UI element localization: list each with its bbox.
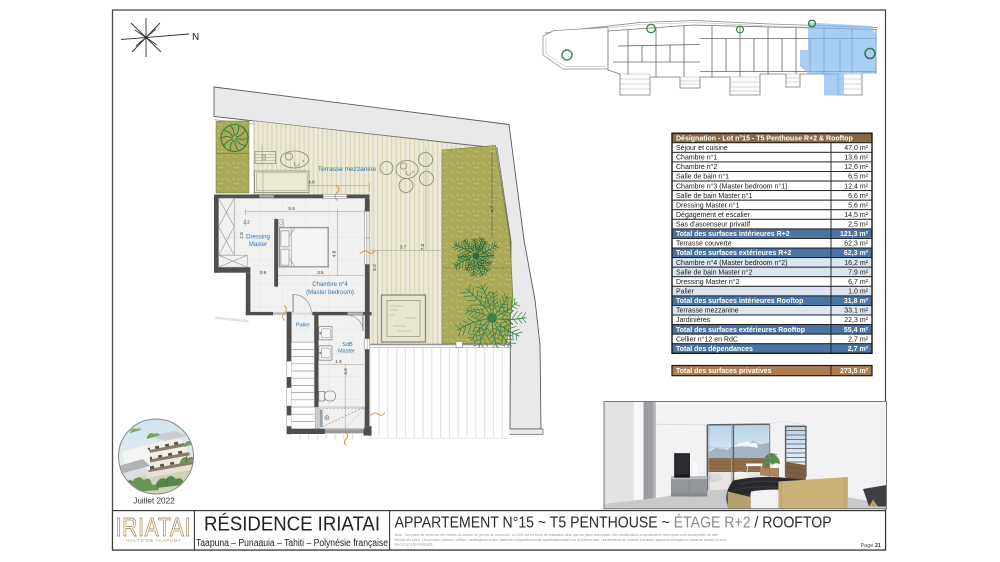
- svg-text:22,3 m²: 22,3 m²: [844, 317, 868, 324]
- svg-text:Dressing Master n°2: Dressing Master n°2: [676, 278, 740, 286]
- svg-text:16,2 m²: 16,2 m²: [844, 260, 868, 267]
- svg-text:12,6 m²: 12,6 m²: [844, 164, 868, 171]
- svg-text:62,3 m²: 62,3 m²: [844, 250, 869, 257]
- svg-text:Dressing: Dressing: [246, 235, 270, 241]
- svg-text:Salle de bain Master n°2: Salle de bain Master n°2: [676, 268, 752, 276]
- svg-text:3.5: 3.5: [317, 270, 324, 275]
- svg-text:SdB: SdB: [342, 342, 353, 348]
- svg-text:6,7 m²: 6,7 m²: [848, 279, 869, 286]
- svg-text:2,7 m²: 2,7 m²: [848, 346, 869, 353]
- svg-text:Nota : Ces plans de vente ont: Nota : Ces plans de vente ont été extrai…: [395, 533, 719, 537]
- svg-text:HAUTS DE TAAPUNA: HAUTS DE TAAPUNA: [126, 538, 182, 543]
- svg-text:Cellier n°12 en RdC: Cellier n°12 en RdC: [676, 335, 738, 343]
- svg-text:Total des surfaces intérieures: Total des surfaces intérieures R+2: [676, 231, 790, 238]
- svg-text:3.7: 3.7: [400, 245, 407, 250]
- svg-text:Taapuna – Punaauia – Tahiti –: Taapuna – Punaauia – Tahiti – Polynésie …: [196, 538, 388, 549]
- svg-text:Terrasse couverte: Terrasse couverte: [676, 241, 732, 248]
- svg-text:Dressing Master n°1: Dressing Master n°1: [676, 201, 740, 209]
- svg-text:31,8 m²: 31,8 m²: [844, 298, 869, 305]
- svg-text:1,0 m²: 1,0 m²: [848, 289, 869, 296]
- svg-text:2.2: 2.2: [262, 154, 267, 161]
- svg-text:Sas d'ascenseur privatif: Sas d'ascenseur privatif: [676, 222, 750, 229]
- svg-text:6.0: 6.0: [372, 264, 377, 271]
- svg-text:12,4 m²: 12,4 m²: [844, 183, 868, 190]
- svg-text:Total des surfaces intérieures: Total des surfaces intérieures Rooftop: [676, 298, 803, 305]
- svg-text:4.7: 4.7: [490, 205, 495, 212]
- svg-text:4.6: 4.6: [308, 180, 315, 185]
- svg-text:13,6 m²: 13,6 m²: [844, 155, 868, 162]
- svg-text:Master: Master: [338, 348, 355, 354]
- svg-text:Chambre n°4 (Master bedroom n°: Chambre n°4 (Master bedroom n°2): [676, 259, 787, 267]
- svg-text:6,6 m²: 6,6 m²: [848, 193, 869, 200]
- svg-text:4.0: 4.0: [343, 368, 348, 375]
- svg-text:Chambre n°1: Chambre n°1: [676, 154, 717, 162]
- svg-text:Total des surfaces extérieures: Total des surfaces extérieures Rooftop: [676, 327, 805, 334]
- svg-text:Page 21: Page 21: [861, 543, 882, 549]
- svg-text:6,5 m²: 6,5 m²: [848, 174, 869, 181]
- svg-text:7,9 m²: 7,9 m²: [848, 269, 869, 276]
- svg-text:Chambre n°3 (Master bedroom n°: Chambre n°3 (Master bedroom n°1): [676, 182, 787, 190]
- svg-text:2.8: 2.8: [239, 232, 244, 239]
- svg-text:Jardinières: Jardinières: [676, 317, 711, 324]
- svg-text:Terrasse mezzanine: Terrasse mezzanine: [318, 166, 377, 173]
- svg-text:5,6 m²: 5,6 m²: [848, 202, 869, 209]
- svg-text:Master: Master: [249, 242, 267, 248]
- svg-text:47,0 m²: 47,0 m²: [844, 145, 868, 152]
- svg-text:Palier: Palier: [676, 289, 695, 296]
- svg-text:RÉSIDENCE IRIATAI: RÉSIDENCE IRIATAI: [204, 513, 380, 536]
- svg-text:4.8: 4.8: [331, 250, 336, 257]
- svg-text:14,5 m²: 14,5 m²: [844, 212, 868, 219]
- svg-text:évoluer les plans. Les poutres: évoluer les plans. Les poutres, poteaux,…: [395, 538, 727, 542]
- svg-text:273,5 m²: 273,5 m²: [840, 368, 869, 375]
- svg-text:Palier: Palier: [296, 322, 310, 328]
- svg-text:Séjour et cuisine: Séjour et cuisine: [676, 145, 728, 152]
- svg-text:33,1 m²: 33,1 m²: [844, 308, 868, 315]
- svg-text:Chambre n°2: Chambre n°2: [676, 163, 717, 171]
- svg-text:Salle de bain n°1: Salle de bain n°1: [676, 173, 729, 181]
- svg-text:Terrasse mezzanine: Terrasse mezzanine: [676, 308, 739, 315]
- svg-text:placés qu’à titre indicatifs.: placés qu’à titre indicatifs.: [395, 542, 434, 546]
- svg-text:Total des surfaces extérieures: Total des surfaces extérieures R+2: [676, 250, 791, 257]
- svg-text:55,4 m²: 55,4 m²: [844, 327, 869, 334]
- svg-text:Total des surfaces privatives: Total des surfaces privatives: [676, 368, 772, 375]
- svg-text:Total des dépendances: Total des dépendances: [676, 346, 753, 353]
- svg-text:7.0: 7.0: [420, 243, 425, 250]
- svg-text:1.9: 1.9: [335, 359, 342, 364]
- svg-text:N: N: [192, 32, 199, 43]
- svg-text:APPARTEMENT N°15 ~ T5 PENTHOUS: APPARTEMENT N°15 ~ T5 PENTHOUSE ~ ÉTAGE …: [395, 515, 832, 532]
- svg-text:62,3 m²: 62,3 m²: [844, 241, 868, 248]
- svg-text:121,3 m²: 121,3 m²: [840, 231, 869, 238]
- svg-text:Désignation - Lot n°15 - T5 Pe: Désignation - Lot n°15 - T5 Penthouse R+…: [676, 134, 853, 142]
- svg-text:(Master bedroom): (Master bedroom): [306, 290, 354, 296]
- svg-text:5.8: 5.8: [288, 206, 295, 211]
- svg-text:Salle de bain Master n°1: Salle de bain Master n°1: [676, 192, 752, 200]
- svg-text:Juillet 2022: Juillet 2022: [133, 497, 175, 506]
- svg-text:Chambre n°4: Chambre n°4: [312, 282, 348, 288]
- svg-text:0.9: 0.9: [260, 270, 267, 275]
- svg-text:2,5 m²: 2,5 m²: [848, 222, 869, 229]
- svg-text:2,7 m²: 2,7 m²: [848, 336, 869, 343]
- svg-text:2.2: 2.2: [243, 219, 250, 224]
- svg-text:Dégagement et escalier: Dégagement et escalier: [676, 212, 751, 219]
